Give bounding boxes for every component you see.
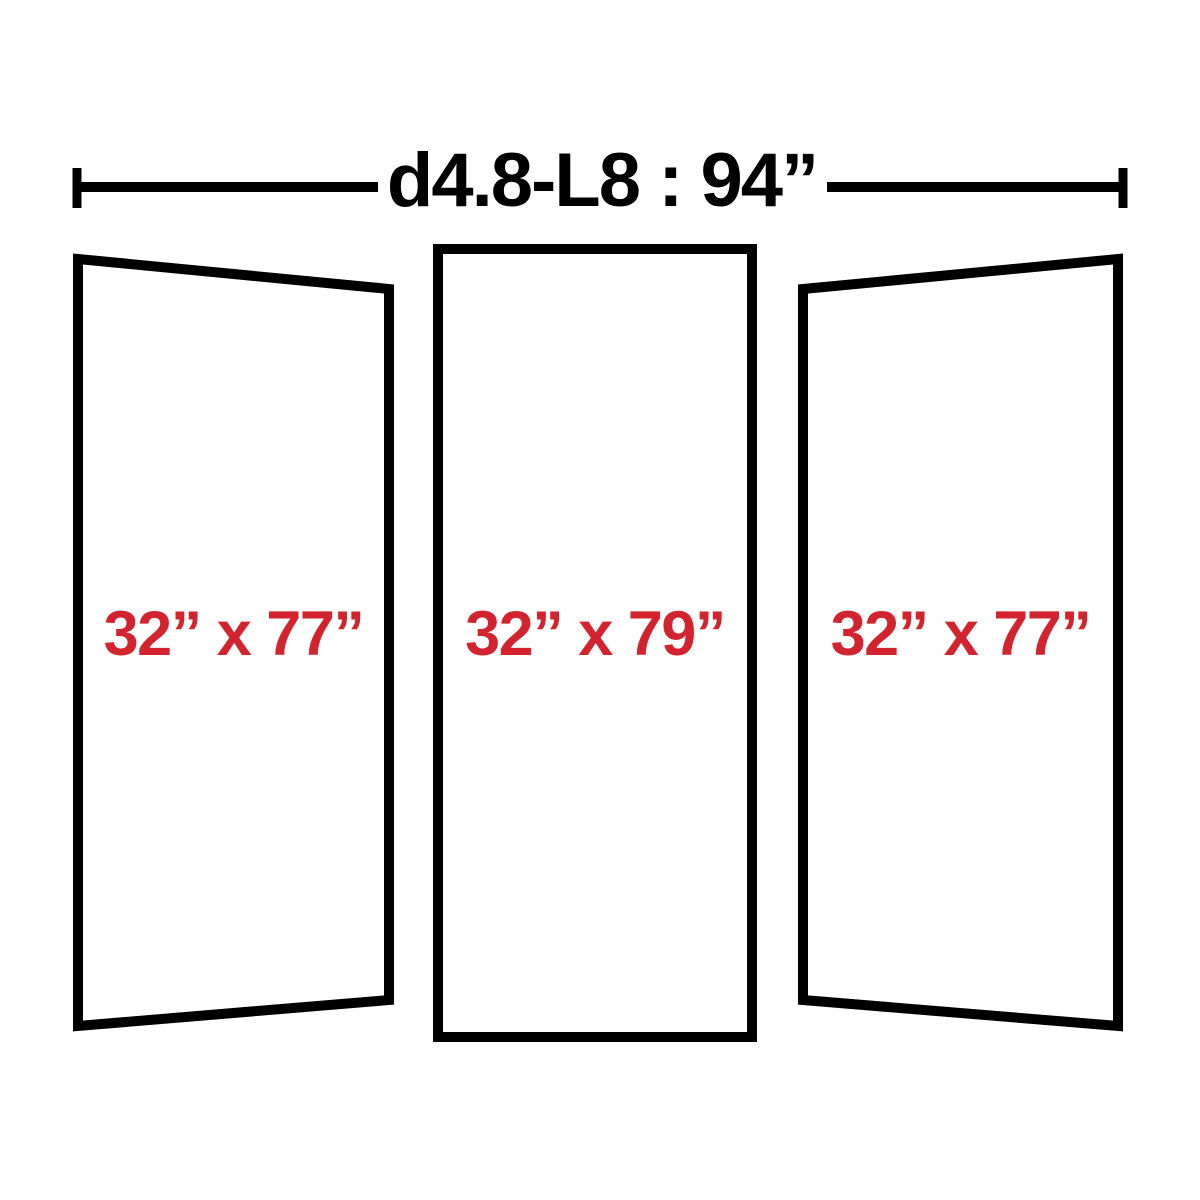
center-panel-size-label: 32” x 79” <box>433 598 757 670</box>
overall-dimension-label: d4.8-L8 : 94” <box>0 138 1200 224</box>
panel-dimension-diagram: d4.8-L8 : 94” 32” x 77” 32” x 79” 32” x … <box>0 0 1200 1200</box>
right-panel-size-label: 32” x 77” <box>798 598 1123 670</box>
left-panel-size-label: 32” x 77” <box>73 598 394 670</box>
